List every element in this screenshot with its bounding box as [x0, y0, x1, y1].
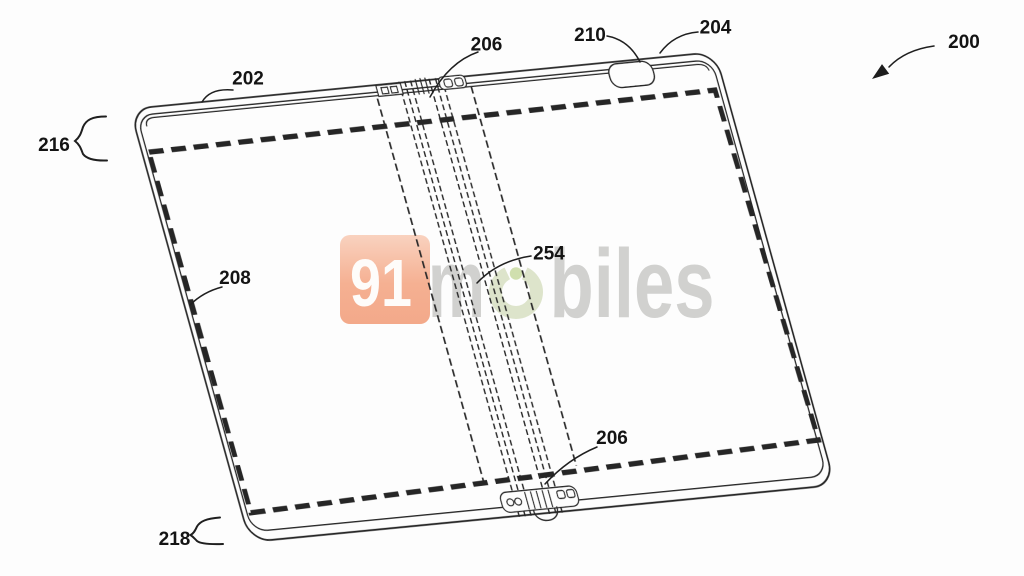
svg-text:202: 202	[232, 69, 264, 90]
svg-text:206: 206	[596, 428, 628, 449]
svg-text:216: 216	[38, 135, 70, 156]
svg-text:200: 200	[948, 32, 980, 53]
svg-text:210: 210	[574, 25, 606, 46]
svg-text:208: 208	[219, 268, 251, 289]
svg-text:biles: biles	[550, 229, 715, 338]
svg-text:254: 254	[533, 244, 565, 265]
svg-text:204: 204	[700, 17, 732, 38]
svg-text:91: 91	[350, 246, 412, 321]
svg-text:218: 218	[159, 529, 191, 550]
svg-text:206: 206	[471, 34, 503, 55]
